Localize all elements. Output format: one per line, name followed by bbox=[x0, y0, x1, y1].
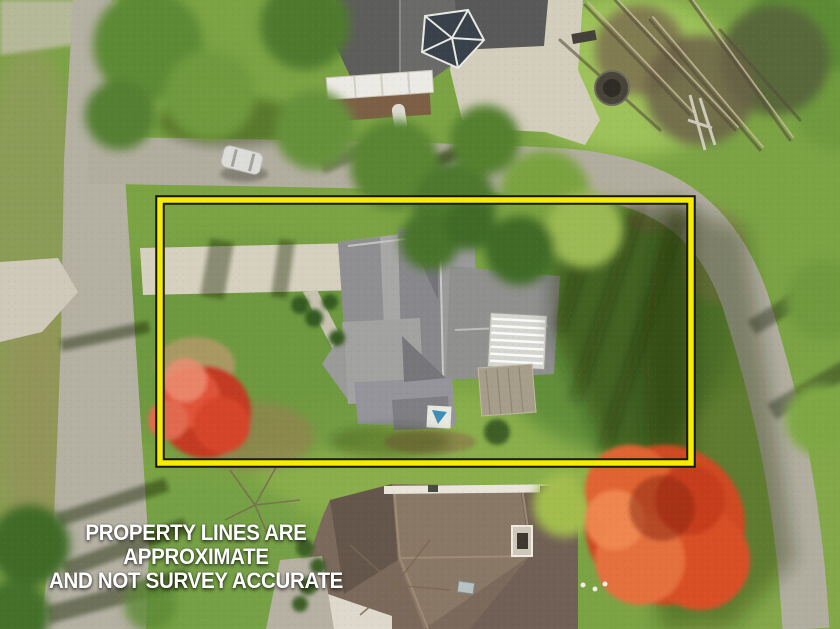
disclaimer-line-2: AND NOT SURVEY ACCURATE bbox=[28, 569, 365, 593]
disclaimer-line-1: PROPERTY LINES ARE APPROXIMATE bbox=[28, 521, 365, 569]
aerial-photo-frame: PROPERTY LINES ARE APPROXIMATE AND NOT S… bbox=[0, 0, 840, 629]
disclaimer-caption: PROPERTY LINES ARE APPROXIMATE AND NOT S… bbox=[28, 521, 365, 592]
